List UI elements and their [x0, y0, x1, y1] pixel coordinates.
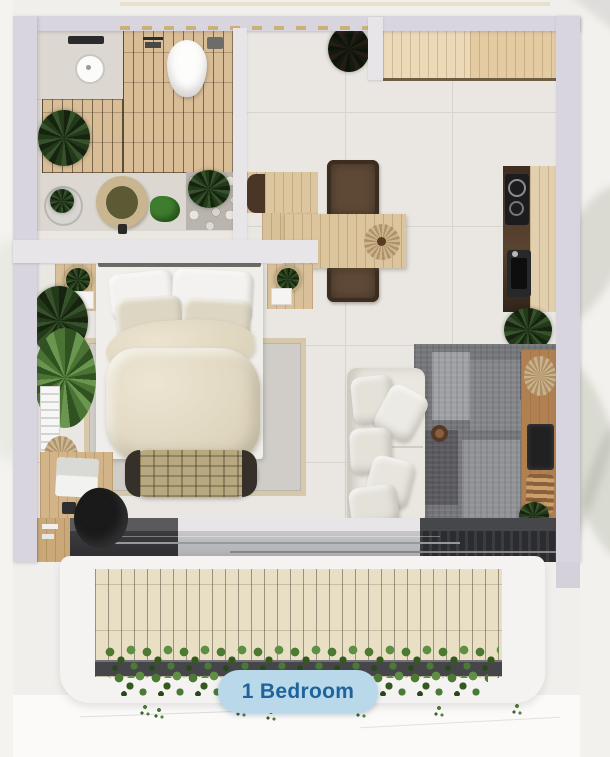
door-rail-highlight [110, 536, 440, 537]
door-rail-2 [230, 551, 556, 553]
bed-duvet [106, 348, 260, 462]
wall-kitchen-gap [368, 17, 383, 80]
shower-head-center [86, 65, 91, 70]
wall-left [13, 16, 37, 562]
wall-bathroom-partition [233, 28, 247, 241]
unit-type-label: 1 Bedroom [242, 680, 354, 704]
door-rail-1 [95, 542, 460, 544]
entry-desk-cabinet [247, 174, 265, 213]
kitchen-cabinet-left [383, 28, 470, 80]
unit-type-button[interactable]: 1 Bedroom [218, 670, 378, 713]
door-strip-shelf-items [42, 524, 58, 529]
frog-figurine [150, 196, 180, 222]
hanging-sprig [434, 704, 444, 720]
table-centerpiece-pot [377, 237, 386, 246]
towel-rail-icon [143, 37, 163, 40]
pebble-area-plant [188, 170, 230, 208]
cooktop-burner-1 [508, 179, 526, 197]
wall-right [556, 16, 580, 562]
cooktop-burner-2 [509, 201, 524, 216]
door-strip-shelf-items [42, 534, 54, 539]
hanging-sprig [140, 703, 150, 719]
floor-plan-screenshot: 1 Bedroom [0, 0, 610, 757]
kitchen-cabinet-right [470, 28, 556, 80]
door-band-light-middle [178, 518, 420, 531]
side-table-plant [50, 189, 74, 213]
kitchen-faucet [512, 251, 518, 257]
dining-chair-bottom [327, 264, 379, 302]
dining-chair-top [327, 160, 379, 219]
toilet-flush-plate [207, 37, 223, 49]
bath-stool-tray [106, 186, 138, 219]
kitchen-hanging-plant [328, 26, 370, 72]
kitchen-sink-basin [511, 258, 527, 289]
side-table-small [431, 425, 448, 442]
bathroom-plant [38, 110, 90, 166]
bed-bench [125, 450, 257, 497]
kitchen-counter-wood [530, 166, 556, 312]
towel-rail-icon [145, 42, 161, 48]
door-band-dark-right [420, 518, 556, 531]
bath-stool-handle [118, 224, 127, 234]
wall-bedroom-divider [13, 240, 318, 263]
hanging-sprig [154, 706, 164, 722]
floor-tile-line [247, 112, 556, 113]
shower-mixer-bar [68, 36, 104, 44]
kitchen-cabinet-edge [383, 78, 556, 81]
wall-tab-bottom-right [556, 562, 580, 588]
background-top-tint [120, 2, 550, 6]
bed-bench-cap-left [125, 450, 140, 497]
console-pampas-decor [524, 356, 556, 396]
tv-screen [527, 424, 554, 470]
hanging-sprig [512, 702, 522, 718]
nightstand-right-card [271, 288, 292, 305]
